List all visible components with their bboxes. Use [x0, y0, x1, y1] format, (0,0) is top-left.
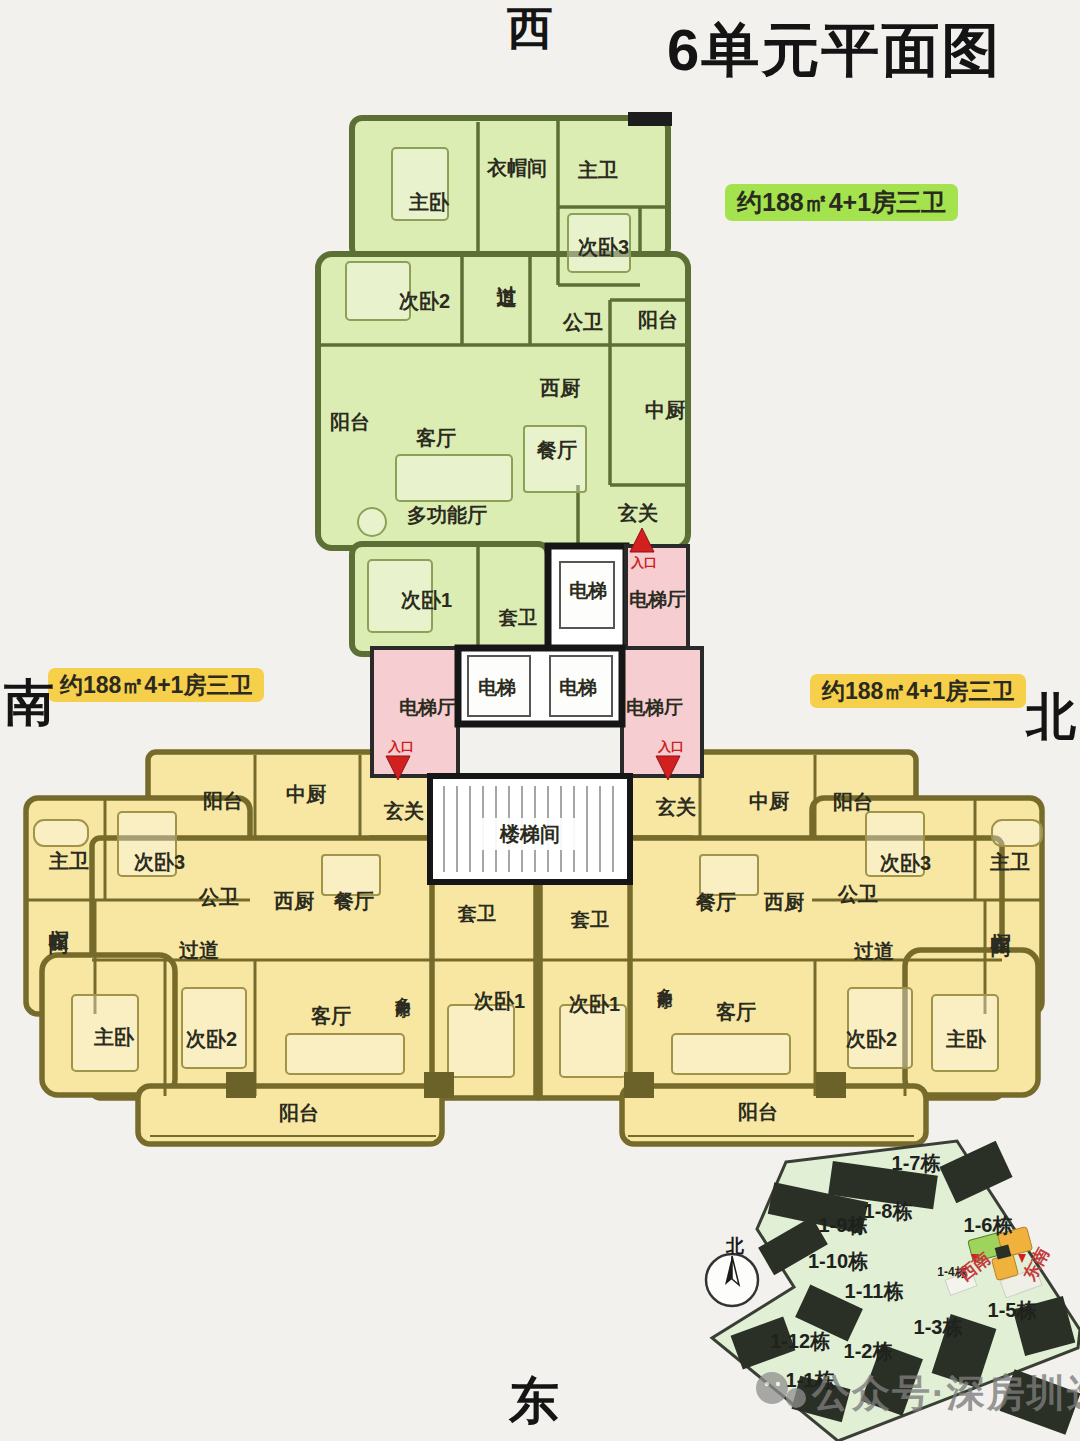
green-unit-shape — [318, 112, 688, 656]
room-label: 中厨 — [645, 400, 685, 421]
room-label: 次卧2 — [186, 1029, 237, 1050]
floor-plan-page: 1-7栋 1-8栋 1-9栋 1-10栋 1-11栋 1-12栋 1-1栋 1-… — [0, 0, 1080, 1441]
elevator-label: 电梯 — [478, 678, 516, 698]
area-tag-green: 约188㎡4+1房三卫 — [725, 184, 958, 221]
room-label: 玄关 — [656, 797, 696, 818]
site-building-label: 1-6栋 — [964, 1214, 1013, 1236]
room-label: 主卧 — [946, 1029, 986, 1050]
entrance-label: 入口 — [631, 556, 657, 569]
elevator-label: 电梯 — [559, 678, 597, 698]
room-label: 中厨 — [749, 791, 789, 812]
elevator-hall-label: 电梯厅 — [626, 698, 683, 718]
room-label: 餐厅 — [334, 891, 374, 912]
room-label: 西厨 — [274, 891, 314, 912]
room-label: 公卫 — [838, 884, 878, 905]
room-label: 衣帽间 — [990, 916, 1011, 922]
elevator-hall-label: 电梯厅 — [399, 698, 456, 718]
compass-north-label: 北 — [725, 1236, 744, 1256]
room-label: 次卧3 — [880, 853, 931, 874]
site-building-label: 1-10栋 — [808, 1250, 868, 1272]
room-label: 套卫 — [458, 904, 496, 924]
room-label: 次卧2 — [399, 291, 450, 312]
site-building-label: 1-11栋 — [845, 1280, 904, 1302]
entrance-label: 入口 — [388, 740, 414, 753]
room-label: 餐厅 — [696, 892, 736, 913]
room-label: 客厅 — [716, 1002, 756, 1023]
room-label: 多功能厅 — [657, 976, 673, 984]
entrance-label: 入口 — [658, 740, 684, 753]
site-building-label: 1-12栋 — [770, 1330, 830, 1352]
watermark-text: 公众号·深房圳选 — [812, 1368, 1080, 1419]
room-label: 主卧 — [409, 192, 449, 213]
room-label: 阳台 — [833, 792, 873, 813]
room-label: 主卫 — [990, 852, 1030, 873]
room-label: 多功能厅 — [407, 505, 487, 526]
room-label: 衣帽间 — [48, 913, 69, 919]
site-building-label: 1-2栋 — [844, 1340, 893, 1362]
room-label: 主卫 — [49, 851, 89, 872]
room-label: 套卫 — [499, 608, 537, 628]
room-label: 套卫 — [571, 910, 609, 930]
room-label: 西厨 — [764, 892, 804, 913]
room-label: 次卧3 — [578, 237, 629, 258]
room-label: 阳台 — [638, 310, 678, 331]
page-title: 6单元平面图 — [667, 12, 1001, 90]
room-label: 阳台 — [203, 791, 243, 812]
site-building-label: 1-3栋 — [914, 1316, 963, 1338]
direction-south: 南 — [4, 678, 54, 728]
room-label: 阳台 — [330, 412, 370, 433]
room-label: 主卧 — [94, 1027, 134, 1048]
room-label: 多功能厅 — [395, 985, 411, 993]
site-building-label: 1-5栋 — [988, 1299, 1037, 1321]
stairwell-label: 楼梯间 — [500, 824, 560, 845]
room-label: 次卧1 — [474, 991, 525, 1012]
room-label: 公卫 — [563, 312, 603, 333]
area-tag-south: 约188㎡4+1房三卫 — [48, 668, 264, 702]
room-label: 次卧2 — [846, 1029, 897, 1050]
room-label: 客厅 — [311, 1006, 351, 1027]
site-building-label: 1-9栋 — [819, 1214, 868, 1236]
room-label: 主卫 — [578, 160, 618, 181]
elevator-hall-label: 电梯厅 — [629, 590, 686, 610]
room-label: 公卫 — [199, 887, 239, 908]
room-label: 次卧1 — [569, 994, 620, 1015]
room-label: 过道 — [496, 270, 517, 274]
room-label: 客厅 — [416, 428, 456, 449]
elevator-label: 电梯 — [569, 581, 607, 601]
room-label: 西厨 — [540, 378, 580, 399]
room-label: 次卧3 — [134, 852, 185, 873]
room-label: 阳台 — [279, 1103, 319, 1124]
direction-north: 北 — [1026, 692, 1076, 742]
direction-east: 东 — [509, 1376, 559, 1426]
direction-west: 西 — [507, 5, 553, 51]
room-label: 阳台 — [738, 1102, 778, 1123]
room-label: 玄关 — [618, 503, 658, 524]
room-label: 中厨 — [286, 784, 326, 805]
site-building-label: 1-8栋 — [864, 1200, 913, 1222]
room-label: 衣帽间 — [487, 158, 547, 179]
room-label: 过道 — [854, 941, 894, 962]
room-label: 餐厅 — [537, 440, 577, 461]
site-building-label: 1-7栋 — [892, 1152, 941, 1174]
compass-icon: 北 — [706, 1236, 758, 1306]
room-label: 玄关 — [384, 801, 424, 822]
room-label: 次卧1 — [401, 590, 452, 611]
room-label: 过道 — [179, 940, 219, 961]
area-tag-north: 约188㎡4+1房三卫 — [810, 674, 1026, 708]
